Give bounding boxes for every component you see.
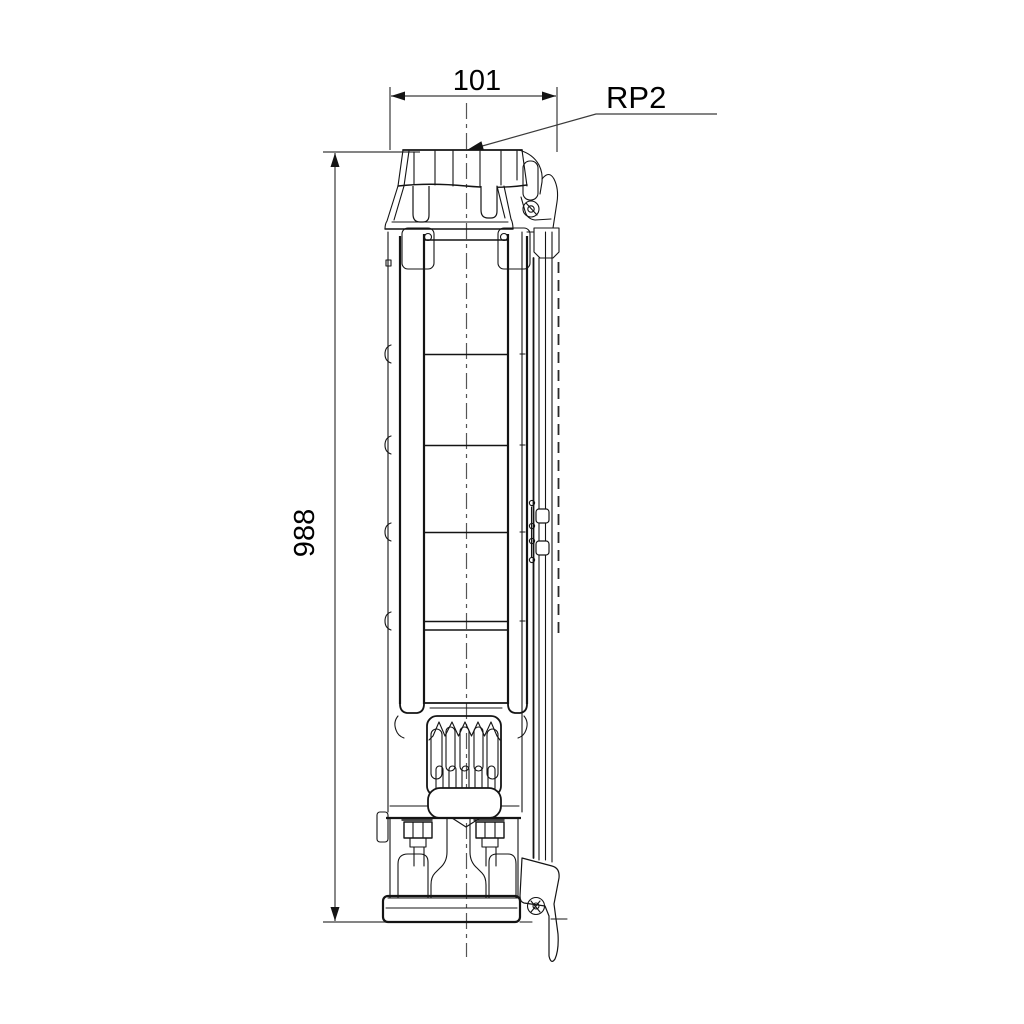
motor-section: [377, 806, 521, 922]
connection-callout: RP2: [467, 80, 717, 150]
interconnector-plate: [428, 788, 501, 818]
suction-strainer: [427, 716, 501, 827]
motor-base-plate: [383, 896, 520, 922]
arrowhead-right-icon: [542, 92, 556, 101]
arrowhead-down-icon: [331, 907, 340, 921]
cable-guard-base: [520, 858, 567, 961]
dimension-height-label: 988: [289, 509, 321, 557]
drawing-canvas: 101 988 RP2: [0, 0, 1024, 1024]
cable-guard: [529, 232, 558, 862]
cable-clip-upper: [536, 509, 549, 523]
pump-dimensional-drawing: 101 988 RP2: [0, 0, 1024, 1024]
connection-label: RP2: [606, 80, 666, 115]
outer-casing-silhouette: [385, 232, 525, 812]
leader-line: [468, 114, 717, 150]
discharge-head: [385, 150, 527, 229]
pump-outline: [377, 150, 567, 961]
leader-arrowhead-icon: [467, 141, 484, 150]
width-dimension: 101: [390, 65, 557, 152]
arrowhead-up-icon: [331, 153, 340, 167]
cable-clamp-top: [519, 150, 559, 258]
arrowhead-left-icon: [391, 92, 405, 101]
dimension-width-label: 101: [453, 65, 501, 97]
right-strap: [498, 228, 530, 738]
left-strap: [395, 228, 434, 738]
cable-clip-lower: [536, 541, 549, 555]
